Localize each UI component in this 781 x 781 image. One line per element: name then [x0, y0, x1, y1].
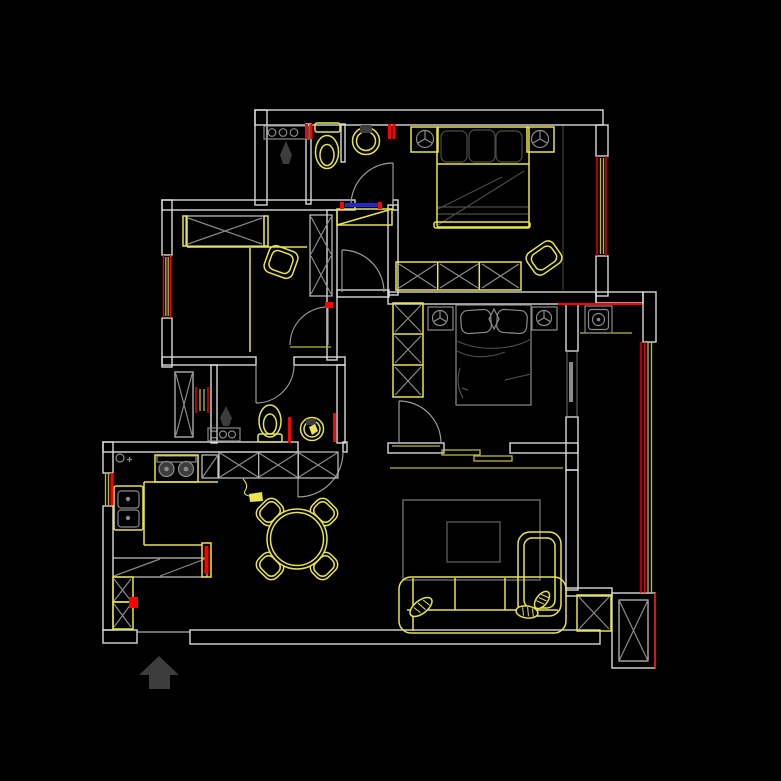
wall-tick	[305, 124, 308, 139]
burner-center	[164, 467, 169, 472]
counter-red-mark	[205, 546, 209, 574]
faucet-icon	[306, 419, 316, 425]
window-red-fill	[111, 473, 114, 505]
sink-drain	[126, 497, 130, 501]
door-frame-mark	[378, 202, 382, 209]
washing-machine-dot	[597, 318, 601, 322]
faucet-icon	[360, 125, 372, 133]
wall-tick	[310, 124, 313, 139]
door-frame-mark	[325, 302, 333, 308]
canvas-background	[0, 0, 781, 781]
dining-table	[267, 509, 327, 569]
wall-tick	[388, 124, 391, 139]
threshold-blue-bar	[345, 203, 378, 207]
door-frame-mark	[333, 413, 336, 442]
blue-accent	[345, 203, 378, 207]
sink-drain	[126, 516, 130, 520]
burner-center	[184, 467, 189, 472]
wall-tick	[393, 124, 396, 139]
cabinet-red-mark	[129, 597, 138, 608]
floor-plan-canvas	[0, 0, 781, 781]
curtain-bar	[569, 362, 573, 402]
door-frame-mark	[288, 417, 291, 443]
door-frame-mark	[340, 202, 344, 209]
